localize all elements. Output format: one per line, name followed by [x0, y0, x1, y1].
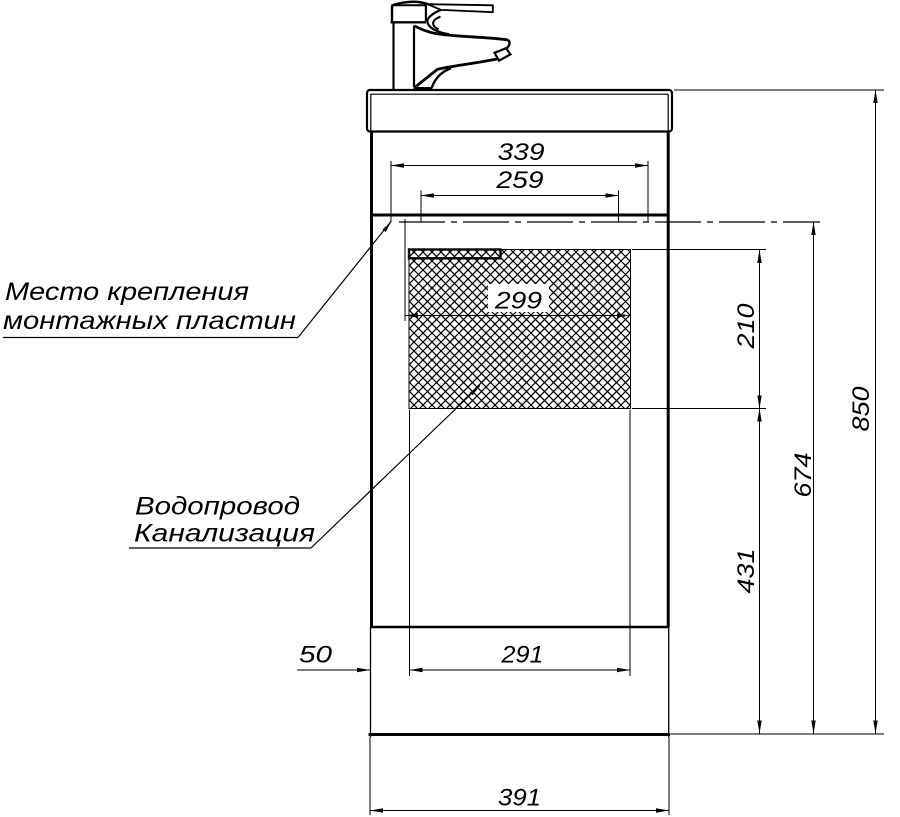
svg-text:431: 431	[733, 549, 760, 594]
svg-text:391: 391	[498, 785, 541, 812]
svg-text:Место крепления: Место крепления	[5, 278, 249, 306]
svg-text:674: 674	[790, 453, 817, 498]
svg-text:50: 50	[299, 642, 333, 669]
svg-text:210: 210	[733, 303, 760, 350]
svg-text:Водопровод: Водопровод	[135, 493, 300, 521]
svg-text:291: 291	[500, 642, 543, 669]
svg-text:монтажных пластин: монтажных пластин	[3, 307, 296, 335]
svg-text:339: 339	[498, 139, 545, 166]
svg-text:850: 850	[848, 386, 875, 432]
svg-text:Канализация: Канализация	[134, 520, 315, 548]
svg-text:259: 259	[495, 167, 543, 194]
svg-text:299: 299	[494, 288, 542, 315]
